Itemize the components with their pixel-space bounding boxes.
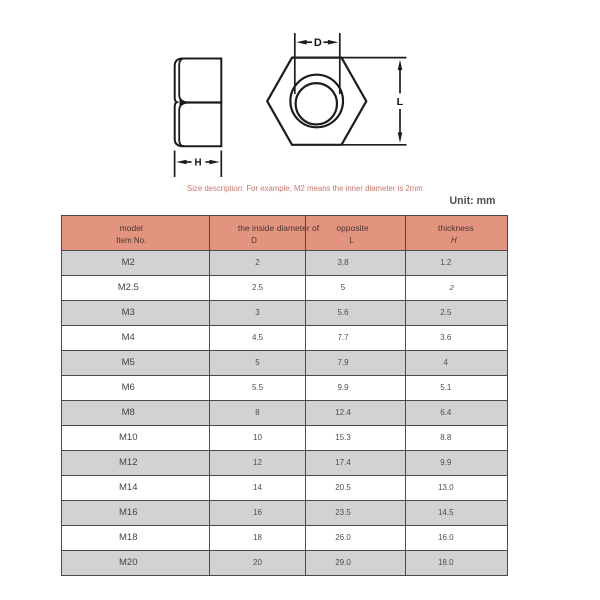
svg-text:H: H (194, 158, 201, 169)
svg-text:D: D (314, 37, 322, 49)
svg-text:L: L (397, 96, 404, 108)
